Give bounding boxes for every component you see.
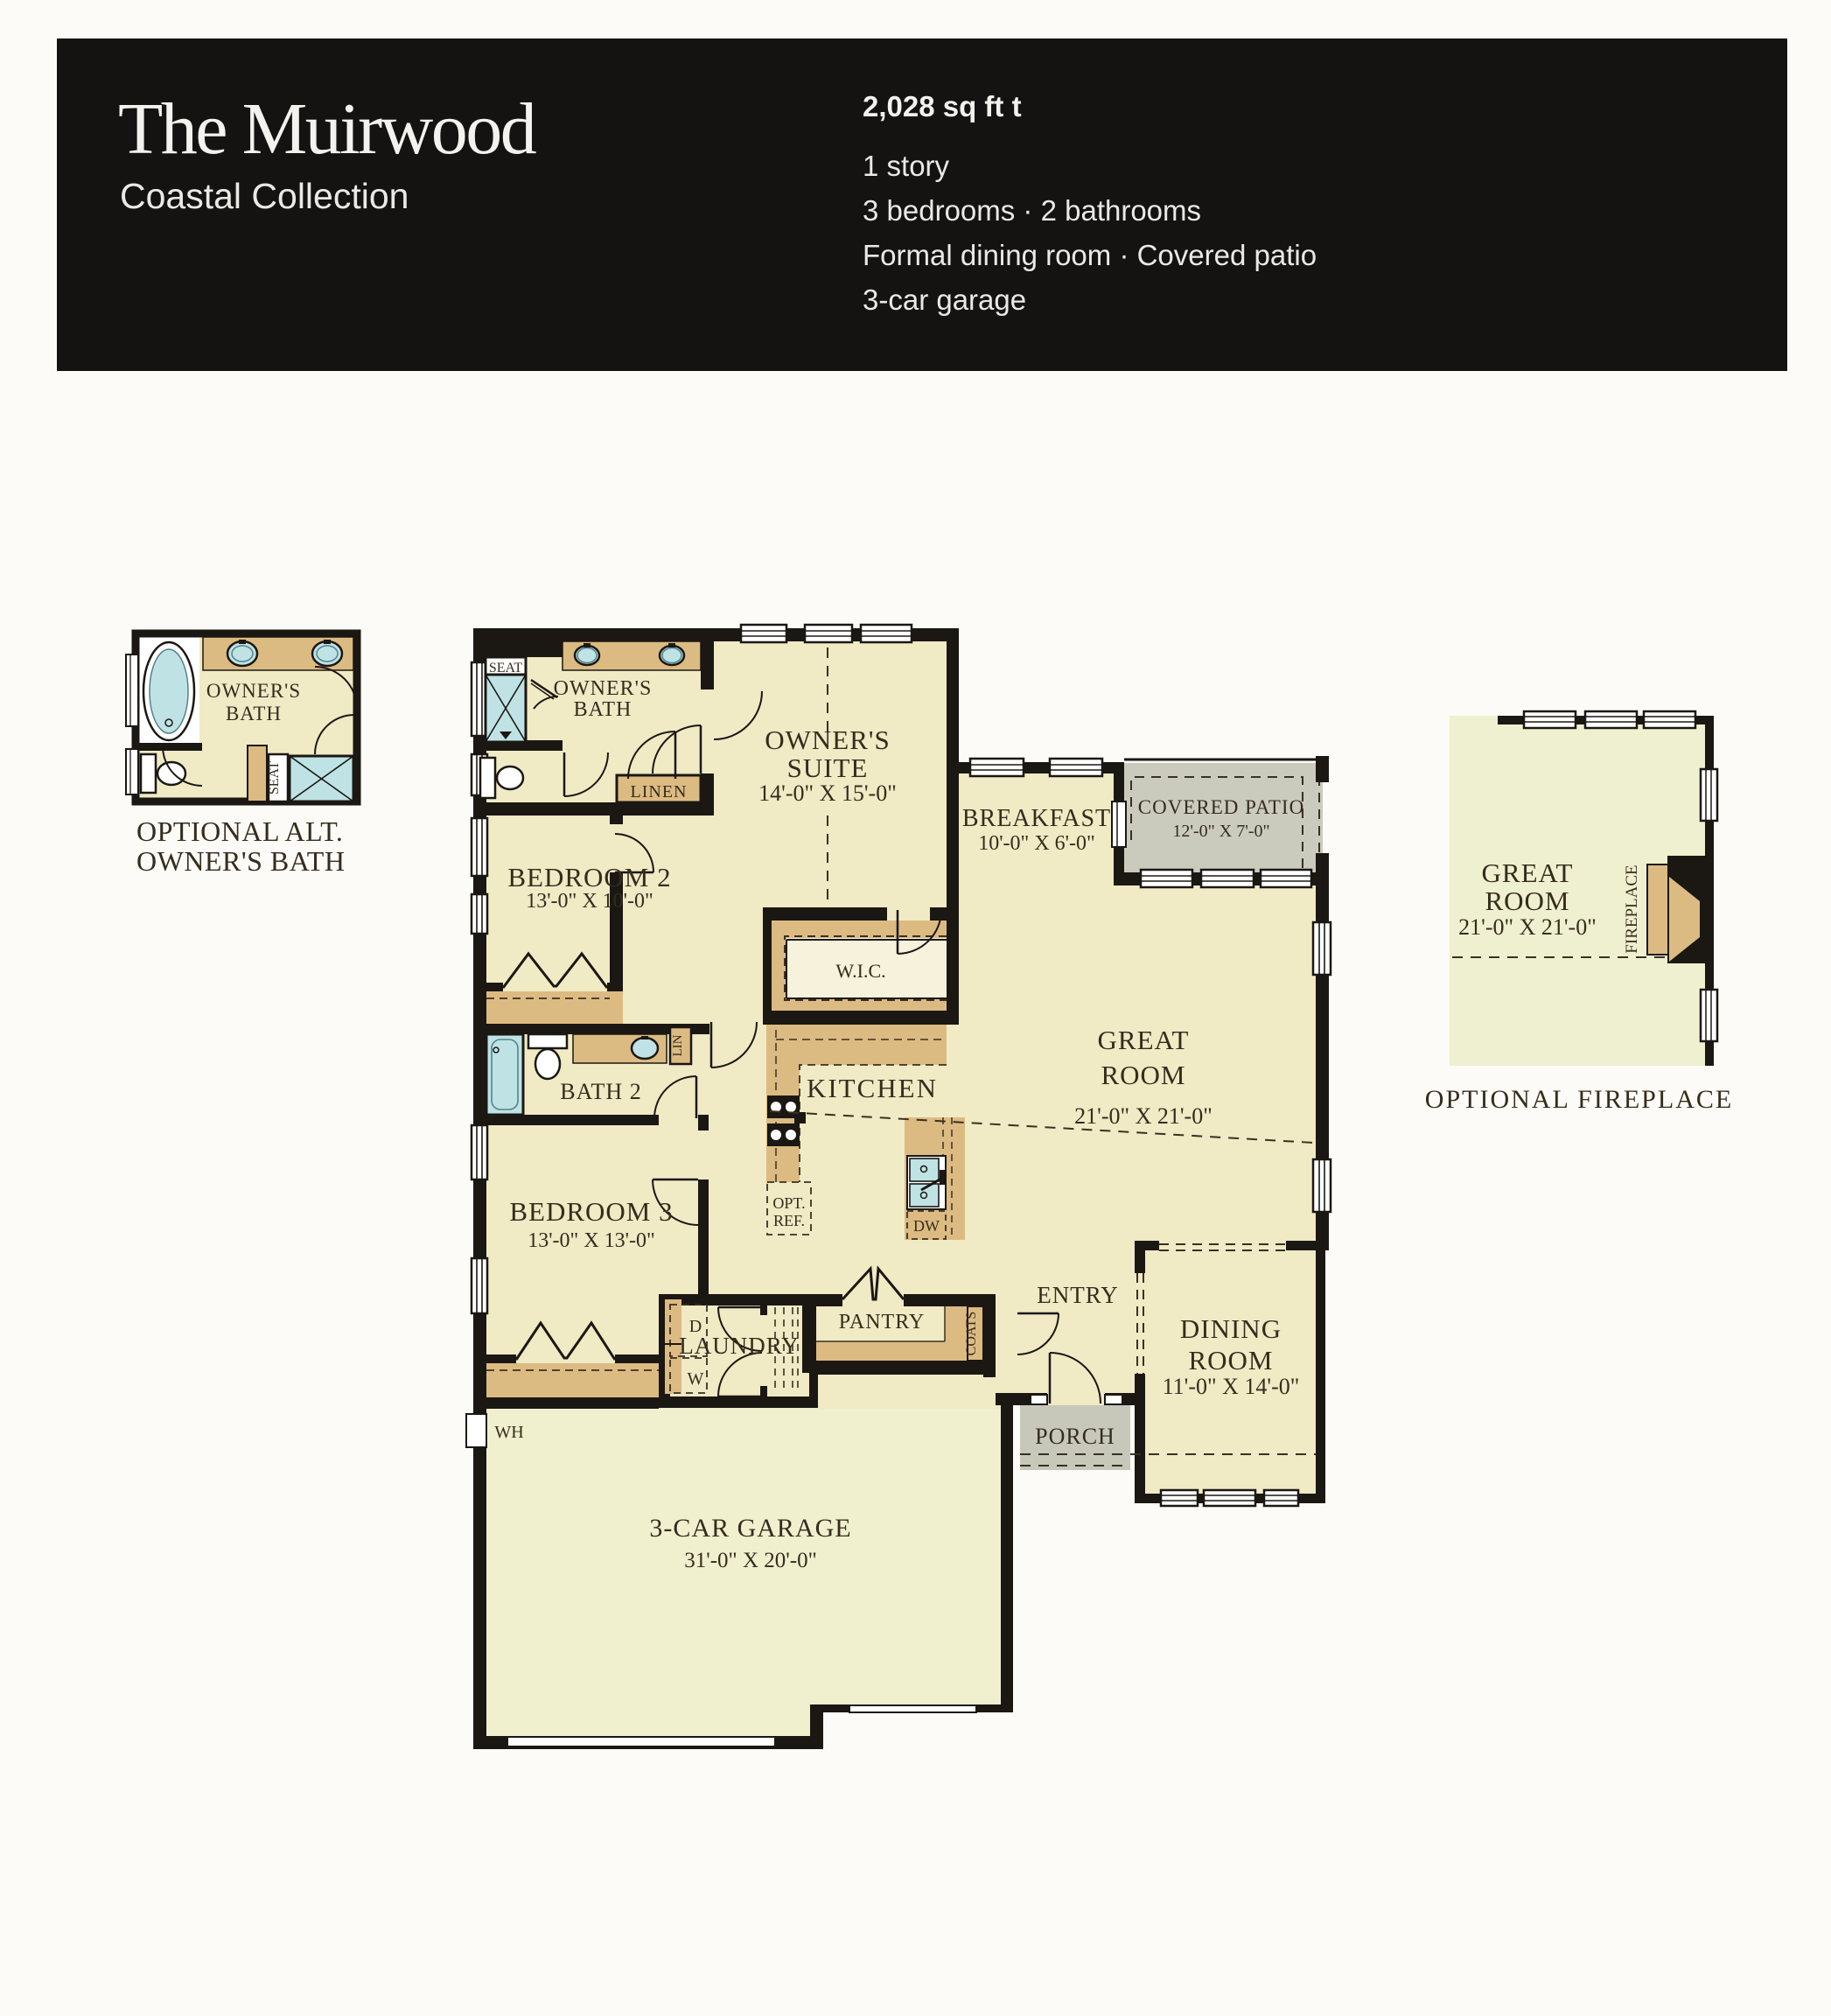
svg-text:12'-0" X 7'-0": 12'-0" X 7'-0" <box>1172 822 1269 841</box>
svg-text:KITCHEN: KITCHEN <box>807 1073 938 1103</box>
svg-text:W.I.C.: W.I.C. <box>835 960 885 982</box>
svg-text:OWNER'S: OWNER'S <box>206 680 301 702</box>
svg-text:LIN: LIN <box>671 1034 685 1056</box>
svg-text:3 bedrooms · 2 bathrooms: 3 bedrooms · 2 bathrooms <box>863 194 1201 227</box>
svg-text:BATH: BATH <box>226 703 282 724</box>
svg-text:BEDROOM 2: BEDROOM 2 <box>507 862 671 892</box>
svg-text:21'-0" X 21'-0": 21'-0" X 21'-0" <box>1458 914 1597 940</box>
svg-text:DW: DW <box>913 1217 940 1235</box>
svg-text:ROOM: ROOM <box>1485 885 1569 916</box>
svg-text:3-car garage: 3-car garage <box>863 283 1026 316</box>
svg-text:OPT.: OPT. <box>772 1194 805 1212</box>
svg-text:13'-0" X 13'-0": 13'-0" X 13'-0" <box>528 1229 655 1252</box>
svg-text:BEDROOM 3: BEDROOM 3 <box>509 1196 673 1227</box>
svg-text:FIREPLACE: FIREPLACE <box>1623 864 1641 953</box>
svg-text:13'-0" X 10'-0": 13'-0" X 10'-0" <box>526 890 653 913</box>
svg-text:BREAKFAST: BREAKFAST <box>962 805 1111 832</box>
svg-text:Coastal Collection: Coastal Collection <box>120 176 409 216</box>
svg-text:11'-0" X 14'-0": 11'-0" X 14'-0" <box>1163 1374 1300 1399</box>
svg-text:31'-0" X 20'-0": 31'-0" X 20'-0" <box>684 1549 817 1572</box>
svg-text:Formal dining room · Covered p: Formal dining room · Covered patio <box>863 239 1317 271</box>
svg-text:The Muirwood: The Muirwood <box>118 88 536 170</box>
svg-text:SUITE: SUITE <box>787 752 869 783</box>
svg-text:OPTIONAL ALT.: OPTIONAL ALT. <box>136 815 343 847</box>
svg-text:14'-0" X 15'-0": 14'-0" X 15'-0" <box>758 780 897 806</box>
svg-text:WH: WH <box>494 1423 523 1442</box>
svg-text:BATH: BATH <box>574 698 632 721</box>
svg-text:3-CAR GARAGE: 3-CAR GARAGE <box>649 1514 851 1543</box>
svg-text:OWNER'S: OWNER'S <box>765 724 890 755</box>
svg-text:BATH 2: BATH 2 <box>560 1079 641 1104</box>
svg-text:PANTRY: PANTRY <box>839 1311 925 1333</box>
svg-text:OWNER'S: OWNER'S <box>554 677 653 700</box>
svg-text:LAUNDRY: LAUNDRY <box>679 1333 800 1359</box>
svg-text:SEAT: SEAT <box>267 761 282 794</box>
svg-text:OWNER'S BATH: OWNER'S BATH <box>136 845 345 877</box>
svg-text:1 story: 1 story <box>863 150 950 182</box>
svg-text:W: W <box>688 1369 704 1389</box>
svg-text:GREAT: GREAT <box>1098 1025 1190 1055</box>
svg-text:ROOM: ROOM <box>1188 1345 1273 1375</box>
svg-text:21'-0" X 21'-0": 21'-0" X 21'-0" <box>1074 1103 1213 1129</box>
svg-text:OPTIONAL FIREPLACE: OPTIONAL FIREPLACE <box>1425 1085 1733 1114</box>
svg-text:ENTRY: ENTRY <box>1037 1282 1119 1308</box>
svg-text:GREAT: GREAT <box>1482 857 1574 888</box>
svg-text:10'-0" X 6'-0": 10'-0" X 6'-0" <box>978 832 1095 855</box>
svg-text:LINEN: LINEN <box>631 782 688 801</box>
svg-text:PORCH: PORCH <box>1035 1424 1115 1449</box>
svg-text:2,028 sq ft t: 2,028 sq ft t <box>863 90 1022 122</box>
svg-text:ROOM: ROOM <box>1101 1060 1185 1090</box>
svg-text:COVERED PATIO: COVERED PATIO <box>1138 796 1304 818</box>
svg-text:COATS: COATS <box>964 1312 979 1356</box>
svg-text:DINING: DINING <box>1180 1313 1282 1344</box>
svg-text:REF.: REF. <box>773 1212 805 1229</box>
svg-text:SEAT: SEAT <box>489 661 522 675</box>
